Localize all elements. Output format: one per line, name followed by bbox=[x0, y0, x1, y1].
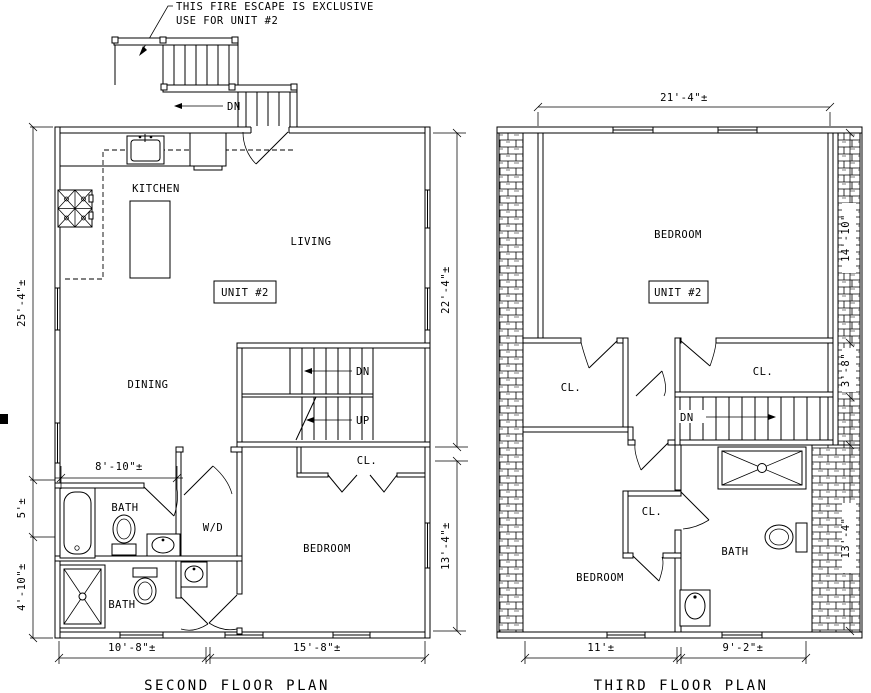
kitchen-label: KITCHEN bbox=[132, 183, 180, 195]
toilet bbox=[112, 515, 136, 555]
window bbox=[333, 632, 370, 638]
stair-treads bbox=[690, 397, 820, 440]
stair-dn-label: DN bbox=[680, 412, 694, 424]
dim-bottom-left: 11'± bbox=[587, 642, 614, 654]
unit-label-box: UNIT #2 bbox=[214, 281, 276, 303]
dim-right-upper: 14'-10" bbox=[840, 214, 852, 262]
floor-plan-page: { "canvas": { "background": "#ffffff", "… bbox=[0, 0, 871, 693]
dim-right-lower: 13'-4"± bbox=[440, 522, 452, 570]
fire-escape-dn-label: DN bbox=[227, 101, 241, 113]
closet-left-label: CL. bbox=[561, 382, 581, 394]
range bbox=[58, 190, 93, 227]
window bbox=[225, 632, 263, 638]
second-floor-title: SECOND FLOOR PLAN bbox=[144, 678, 330, 693]
closet-lower-door bbox=[633, 556, 663, 581]
window bbox=[722, 632, 762, 638]
dining-label: DINING bbox=[128, 379, 169, 391]
interior-stair-second: DN UP bbox=[237, 343, 430, 634]
fire-escape: DN bbox=[112, 37, 297, 127]
kitchen-island bbox=[130, 201, 170, 278]
stair-rails bbox=[242, 348, 373, 440]
note-line-1: THIS FIRE ESCAPE IS EXCLUSIVE bbox=[176, 1, 374, 13]
dn-arrowhead-icon bbox=[174, 103, 182, 109]
living-label: LIVING bbox=[291, 236, 332, 248]
bath-label: BATH bbox=[721, 546, 748, 558]
stair-dn-label: DN bbox=[356, 366, 370, 378]
dn-arrowhead-icon bbox=[768, 414, 776, 420]
dim-top: 21'-4"± bbox=[660, 92, 708, 104]
third-floor-title: THIRD FLOOR PLAN bbox=[594, 678, 769, 693]
bathtub bbox=[60, 488, 95, 558]
closet-right-door bbox=[681, 341, 716, 366]
roof-hatch-left bbox=[499, 133, 523, 632]
shower bbox=[718, 447, 806, 489]
window bbox=[55, 288, 60, 330]
bath-upper-label: BATH bbox=[111, 502, 138, 514]
window bbox=[55, 423, 60, 463]
cabinet-dashed-line bbox=[62, 150, 293, 279]
kitchen-sink bbox=[127, 134, 164, 164]
bedroom-door bbox=[209, 595, 237, 630]
dim-right-middle: 3'-8" bbox=[840, 353, 852, 387]
bifold-door bbox=[328, 475, 357, 492]
dim-right-lower: 13'-4" bbox=[840, 518, 852, 559]
dim-left-upper: 25'-4"± bbox=[16, 279, 28, 327]
bath-door bbox=[144, 487, 178, 516]
bifold-door bbox=[370, 475, 397, 492]
closet-right-label: CL. bbox=[753, 366, 773, 378]
roof-hatch-right-upper bbox=[838, 133, 860, 445]
window bbox=[607, 632, 645, 638]
kitchen-fixtures bbox=[58, 132, 293, 279]
edge-mark bbox=[0, 414, 8, 424]
room-labels-third: BEDROOM BEDROOM BATH CL. CL. CL. UNIT #2 bbox=[561, 229, 773, 584]
hall-door bbox=[636, 371, 666, 396]
bedroom-entry-door bbox=[635, 443, 668, 470]
bath-lower-door bbox=[181, 597, 208, 630]
second-floor-plan: THIS FIRE ESCAPE IS EXCLUSIVE USE FOR UN… bbox=[0, 1, 468, 693]
door-opening bbox=[251, 126, 289, 134]
unit-label: UNIT #2 bbox=[654, 287, 702, 299]
pedestal-sink bbox=[680, 590, 710, 626]
entry-door bbox=[243, 132, 288, 164]
bedroom-lower-label: BEDROOM bbox=[576, 572, 624, 584]
dim-bath-width: 8'-10"± bbox=[95, 461, 143, 473]
bath-fixtures-third bbox=[680, 447, 807, 626]
bath-lower-label: BATH bbox=[108, 599, 135, 611]
lower-stair-treads bbox=[238, 92, 297, 127]
dim-bottom-right: 9'-2"± bbox=[723, 642, 764, 654]
dn-arrowhead-icon bbox=[304, 368, 312, 374]
unit-label: UNIT #2 bbox=[221, 287, 269, 299]
bath-door bbox=[681, 492, 709, 529]
dim-left-lower: 4'-10"± bbox=[16, 563, 28, 611]
leader-arrowhead-icon bbox=[139, 46, 147, 56]
window bbox=[425, 288, 430, 330]
up-arrowhead-icon bbox=[306, 417, 314, 423]
third-floor-plan: DN bbox=[497, 92, 862, 693]
wd-door bbox=[184, 466, 232, 495]
closet-label: CL. bbox=[357, 455, 377, 467]
interior-stair-third: DN bbox=[678, 397, 820, 440]
window bbox=[613, 127, 653, 133]
window bbox=[718, 127, 757, 133]
closet-lower-label: CL. bbox=[642, 506, 662, 518]
closet-left-door bbox=[581, 341, 617, 368]
sink bbox=[147, 534, 180, 556]
dim-left-middle: 5'± bbox=[16, 498, 28, 518]
toilet bbox=[765, 523, 807, 552]
stair-up-label: UP bbox=[356, 415, 370, 427]
note-line-2: USE FOR UNIT #2 bbox=[176, 15, 278, 27]
window bbox=[425, 523, 430, 568]
dimensions-third: 21'-4"± 14'-10" 3'-8" 13'-4" 11'± 9'-2"± bbox=[521, 92, 856, 664]
stair-treads-up bbox=[296, 397, 362, 440]
unit-label-box: UNIT #2 bbox=[649, 281, 708, 303]
doors-third bbox=[581, 341, 716, 581]
shower bbox=[60, 565, 105, 628]
dim-right-upper: 22'-4"± bbox=[440, 266, 452, 314]
vanity-sink bbox=[181, 562, 207, 587]
window bbox=[425, 190, 430, 228]
dim-bottom-left: 10'-8"± bbox=[108, 642, 156, 654]
toilet bbox=[133, 568, 157, 604]
bedroom-upper-label: BEDROOM bbox=[654, 229, 702, 241]
washer-dryer-label: W/D bbox=[203, 522, 223, 534]
bedroom-label: BEDROOM bbox=[303, 543, 351, 555]
refrigerator bbox=[190, 133, 226, 170]
dim-bottom-right: 15'-8"± bbox=[293, 642, 341, 654]
window bbox=[120, 632, 163, 638]
architectural-drawing: THIS FIRE ESCAPE IS EXCLUSIVE USE FOR UN… bbox=[0, 0, 871, 693]
